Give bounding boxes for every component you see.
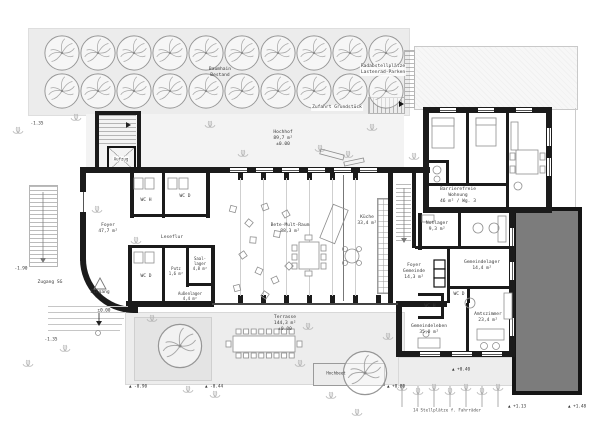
furniture bbox=[292, 245, 297, 251]
wall bbox=[186, 247, 189, 287]
room-label-foyer-gemeinde: FoyerGemeinde14,3 m² bbox=[403, 263, 425, 281]
furniture bbox=[540, 153, 545, 160]
hochbeet-planter bbox=[313, 363, 385, 386]
wall bbox=[353, 295, 358, 303]
window-line bbox=[452, 354, 472, 355]
wall bbox=[130, 172, 134, 218]
furniture-round bbox=[481, 343, 488, 350]
furniture bbox=[292, 254, 297, 260]
plant-icon bbox=[92, 206, 102, 212]
window-line bbox=[478, 110, 494, 111]
window-line bbox=[549, 128, 550, 146]
wall bbox=[307, 295, 312, 303]
furniture bbox=[418, 338, 440, 348]
plant-icon bbox=[352, 409, 362, 415]
furniture-round bbox=[493, 343, 500, 350]
wall bbox=[330, 295, 335, 303]
wall bbox=[162, 172, 165, 218]
plant-icon bbox=[413, 388, 423, 394]
window-line bbox=[440, 110, 456, 111]
wall bbox=[446, 160, 449, 185]
site-step-line bbox=[48, 312, 126, 313]
site-step-line bbox=[48, 306, 128, 307]
furniture bbox=[245, 219, 253, 227]
courtyard-area bbox=[414, 46, 578, 110]
level-marker: ▲ -0.90 bbox=[129, 385, 147, 390]
wall bbox=[95, 111, 99, 171]
property-line bbox=[575, 108, 576, 207]
shelf-unit bbox=[434, 278, 445, 287]
furniture bbox=[511, 122, 518, 150]
partition-track bbox=[355, 178, 356, 296]
wall bbox=[137, 111, 141, 171]
courtyard-steps bbox=[404, 50, 415, 108]
wall bbox=[423, 107, 429, 167]
room-label-kueche: Küche33,4 m² bbox=[357, 215, 376, 227]
level-marker: ±0.00 bbox=[98, 309, 111, 314]
zugang-label: Zugang SG bbox=[38, 280, 63, 286]
room-label-leseflur: Leseflur bbox=[161, 235, 183, 241]
wall bbox=[467, 286, 470, 303]
furniture-round bbox=[357, 261, 362, 266]
furniture bbox=[179, 178, 188, 189]
window-line bbox=[308, 170, 325, 171]
site-step-line bbox=[48, 330, 120, 331]
furniture bbox=[516, 150, 538, 174]
plant-icon bbox=[23, 360, 33, 366]
furniture bbox=[255, 267, 263, 275]
level-marker: ▲ -0.44 bbox=[205, 385, 223, 390]
furniture-round bbox=[434, 176, 440, 182]
hochhof-label: Hochhof89,7 m²±0.00 bbox=[273, 130, 292, 148]
window-line bbox=[512, 228, 513, 246]
wall bbox=[447, 249, 450, 303]
wall bbox=[506, 113, 509, 208]
window-line bbox=[230, 170, 247, 171]
wall bbox=[429, 183, 506, 186]
window-line bbox=[420, 354, 440, 355]
wall bbox=[128, 245, 215, 248]
level-marker: ▲ +0.80 bbox=[387, 385, 405, 390]
room-label-wc-h: WC H bbox=[140, 198, 151, 204]
level-marker: ▲ +0.40 bbox=[452, 368, 470, 373]
wall bbox=[284, 295, 289, 303]
plant-icon bbox=[60, 345, 70, 351]
furniture bbox=[271, 276, 279, 284]
floor-plan: BaumhainBestand RadabstellplätzeLastenra… bbox=[0, 0, 600, 426]
level-marker: -1.90 bbox=[15, 267, 28, 272]
level-marker: -1.35 bbox=[31, 122, 44, 127]
glass-facade-line bbox=[212, 303, 398, 305]
orchard-label: BaumhainBestand bbox=[209, 67, 231, 79]
room-label-gemeindeleben: Gemeindeleben35,0 m² bbox=[411, 324, 447, 336]
furniture-round bbox=[473, 223, 483, 233]
window-line bbox=[482, 354, 502, 355]
partition-track bbox=[286, 178, 287, 296]
furniture bbox=[292, 263, 297, 269]
level-marker: ▲ +1.48 bbox=[568, 405, 586, 410]
wall bbox=[396, 301, 402, 357]
wall bbox=[186, 283, 214, 286]
wall bbox=[396, 301, 447, 307]
furniture bbox=[145, 178, 154, 189]
furniture bbox=[321, 254, 326, 260]
room-label-notlager: Notlager9,3 m² bbox=[426, 221, 448, 233]
plant-icon bbox=[183, 386, 193, 392]
room-label-wc-d: WC D bbox=[179, 194, 190, 200]
site-access-label: Zufahrt Grundstück bbox=[311, 105, 363, 111]
furniture bbox=[510, 166, 515, 173]
level-marker: -1.35 bbox=[45, 338, 58, 343]
furniture bbox=[321, 263, 326, 269]
window-line bbox=[256, 170, 273, 171]
partition-track bbox=[332, 178, 333, 296]
kitchen-stair bbox=[396, 184, 411, 244]
orchard-steps bbox=[368, 97, 405, 114]
room-label-amtszimmer: Amtszimmer23,4 m² bbox=[474, 312, 502, 324]
wall bbox=[162, 247, 165, 303]
window-line bbox=[334, 170, 351, 171]
window-line bbox=[549, 158, 550, 176]
wall bbox=[128, 245, 132, 303]
window-line bbox=[516, 110, 532, 111]
wall bbox=[466, 113, 469, 185]
wall bbox=[458, 213, 461, 249]
wall bbox=[418, 316, 444, 319]
terrace-planter-square bbox=[134, 317, 212, 381]
room-label-aussenlager: Außenlager4,4 m² bbox=[178, 291, 202, 301]
plant-icon bbox=[409, 153, 419, 159]
wall bbox=[126, 301, 214, 307]
furniture bbox=[540, 166, 545, 173]
furniture bbox=[168, 178, 177, 189]
drawing-caption: 14 Stellplätze f. Fahrräder bbox=[413, 408, 481, 413]
furniture bbox=[510, 153, 515, 160]
plant-icon bbox=[13, 127, 23, 133]
room-label-gemeindelager: Gemeindelager14,4 m² bbox=[464, 260, 500, 272]
furniture bbox=[477, 329, 504, 340]
furniture bbox=[250, 237, 257, 244]
shelf-unit bbox=[434, 269, 445, 278]
room-label-wc-h2: WC H bbox=[424, 304, 435, 310]
bike-parking-label: RadabstellplätzeLastenrad-Parken bbox=[360, 64, 406, 76]
furniture-round bbox=[345, 249, 359, 263]
room-label-wc-d3: WC D bbox=[453, 292, 464, 298]
wall bbox=[423, 207, 552, 213]
furniture-round bbox=[357, 247, 362, 252]
room-label-putz: Putz1,6 m² bbox=[169, 266, 183, 276]
wall bbox=[238, 295, 243, 303]
wall bbox=[466, 303, 469, 353]
furniture bbox=[432, 118, 454, 148]
plant-icon bbox=[326, 392, 336, 398]
furniture-round bbox=[489, 223, 499, 233]
room-label-wc-d2: WC D bbox=[140, 274, 151, 280]
wall bbox=[211, 245, 215, 303]
wall bbox=[423, 162, 429, 213]
furniture bbox=[498, 216, 506, 242]
wall bbox=[388, 172, 393, 303]
wall bbox=[415, 246, 511, 249]
hochbeet-label: Hochbeet bbox=[326, 370, 345, 375]
wall bbox=[412, 172, 416, 248]
partition-track bbox=[240, 178, 241, 296]
room-label-saallager: Saal-lager4,8 m² bbox=[193, 256, 207, 272]
furniture-round bbox=[514, 182, 522, 190]
room-label-eingang: Eingang bbox=[90, 290, 109, 296]
furniture-round bbox=[433, 166, 441, 174]
room-label-aufzug: Aufzug bbox=[113, 156, 129, 161]
shelf-unit bbox=[434, 260, 445, 269]
wall bbox=[447, 286, 511, 289]
furniture bbox=[229, 205, 236, 212]
furniture bbox=[134, 178, 143, 189]
terrasse-label: Terrasse144,3 m²±0.00 bbox=[274, 315, 296, 333]
window-line bbox=[83, 192, 84, 212]
furniture bbox=[476, 118, 496, 146]
wall bbox=[418, 213, 422, 250]
window-line bbox=[360, 170, 377, 171]
partition-track bbox=[263, 178, 264, 296]
furniture bbox=[145, 252, 154, 263]
wall bbox=[376, 295, 381, 303]
wall bbox=[95, 111, 141, 115]
wall bbox=[261, 295, 266, 303]
room-label-foyer: Foyer47,7 m² bbox=[98, 223, 117, 235]
window-line bbox=[512, 318, 513, 336]
plant-icon bbox=[445, 388, 455, 394]
exterior-stair-west bbox=[29, 185, 58, 267]
site-step-line bbox=[48, 318, 124, 319]
level-marker: ▲ +1.13 bbox=[508, 405, 526, 410]
room-label-wohnung: BarrierefreieWohnung46 m² / Wg. 3 bbox=[440, 187, 476, 205]
wall bbox=[130, 214, 210, 217]
tower-stair bbox=[99, 115, 136, 145]
room-label-saal: Bete-Mult-Raum88,3 m² bbox=[271, 223, 310, 235]
site-step-line bbox=[48, 324, 122, 325]
furniture-round bbox=[96, 331, 101, 336]
plant-icon bbox=[477, 388, 487, 394]
wall bbox=[206, 172, 210, 218]
furniture bbox=[476, 118, 496, 125]
window-line bbox=[512, 262, 513, 280]
plant-icon bbox=[131, 237, 141, 243]
wall bbox=[80, 167, 86, 261]
plant-icon bbox=[210, 391, 220, 397]
kitchen-partition bbox=[343, 175, 344, 301]
neighbor-building-mass bbox=[512, 207, 582, 395]
partition-track bbox=[309, 178, 310, 296]
furniture bbox=[321, 245, 326, 251]
furniture bbox=[432, 118, 454, 126]
window-line bbox=[282, 170, 299, 171]
